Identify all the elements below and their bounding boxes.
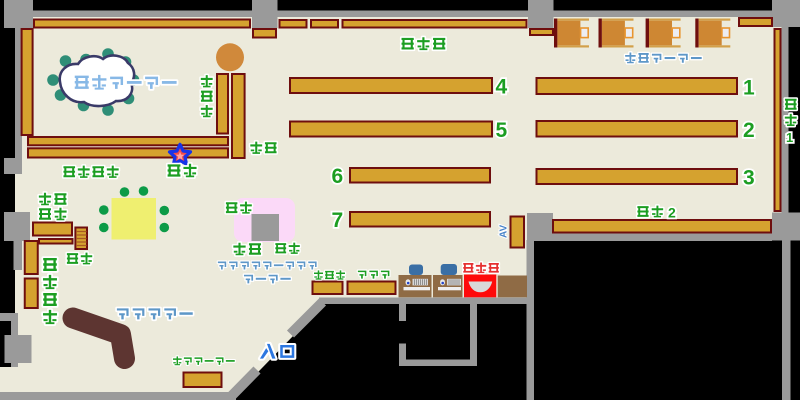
svg-text:3: 3: [743, 167, 755, 190]
svg-text:7: 7: [332, 209, 344, 232]
svg-text:4: 4: [496, 76, 508, 99]
svg-text:5: 5: [496, 119, 508, 142]
svg-text:2: 2: [743, 119, 755, 142]
svg-text:1: 1: [786, 130, 793, 145]
svg-text:2: 2: [668, 205, 676, 221]
svg-text:6: 6: [332, 165, 344, 188]
svg-text:1: 1: [743, 77, 755, 100]
svg-text:AV: AV: [499, 225, 510, 238]
